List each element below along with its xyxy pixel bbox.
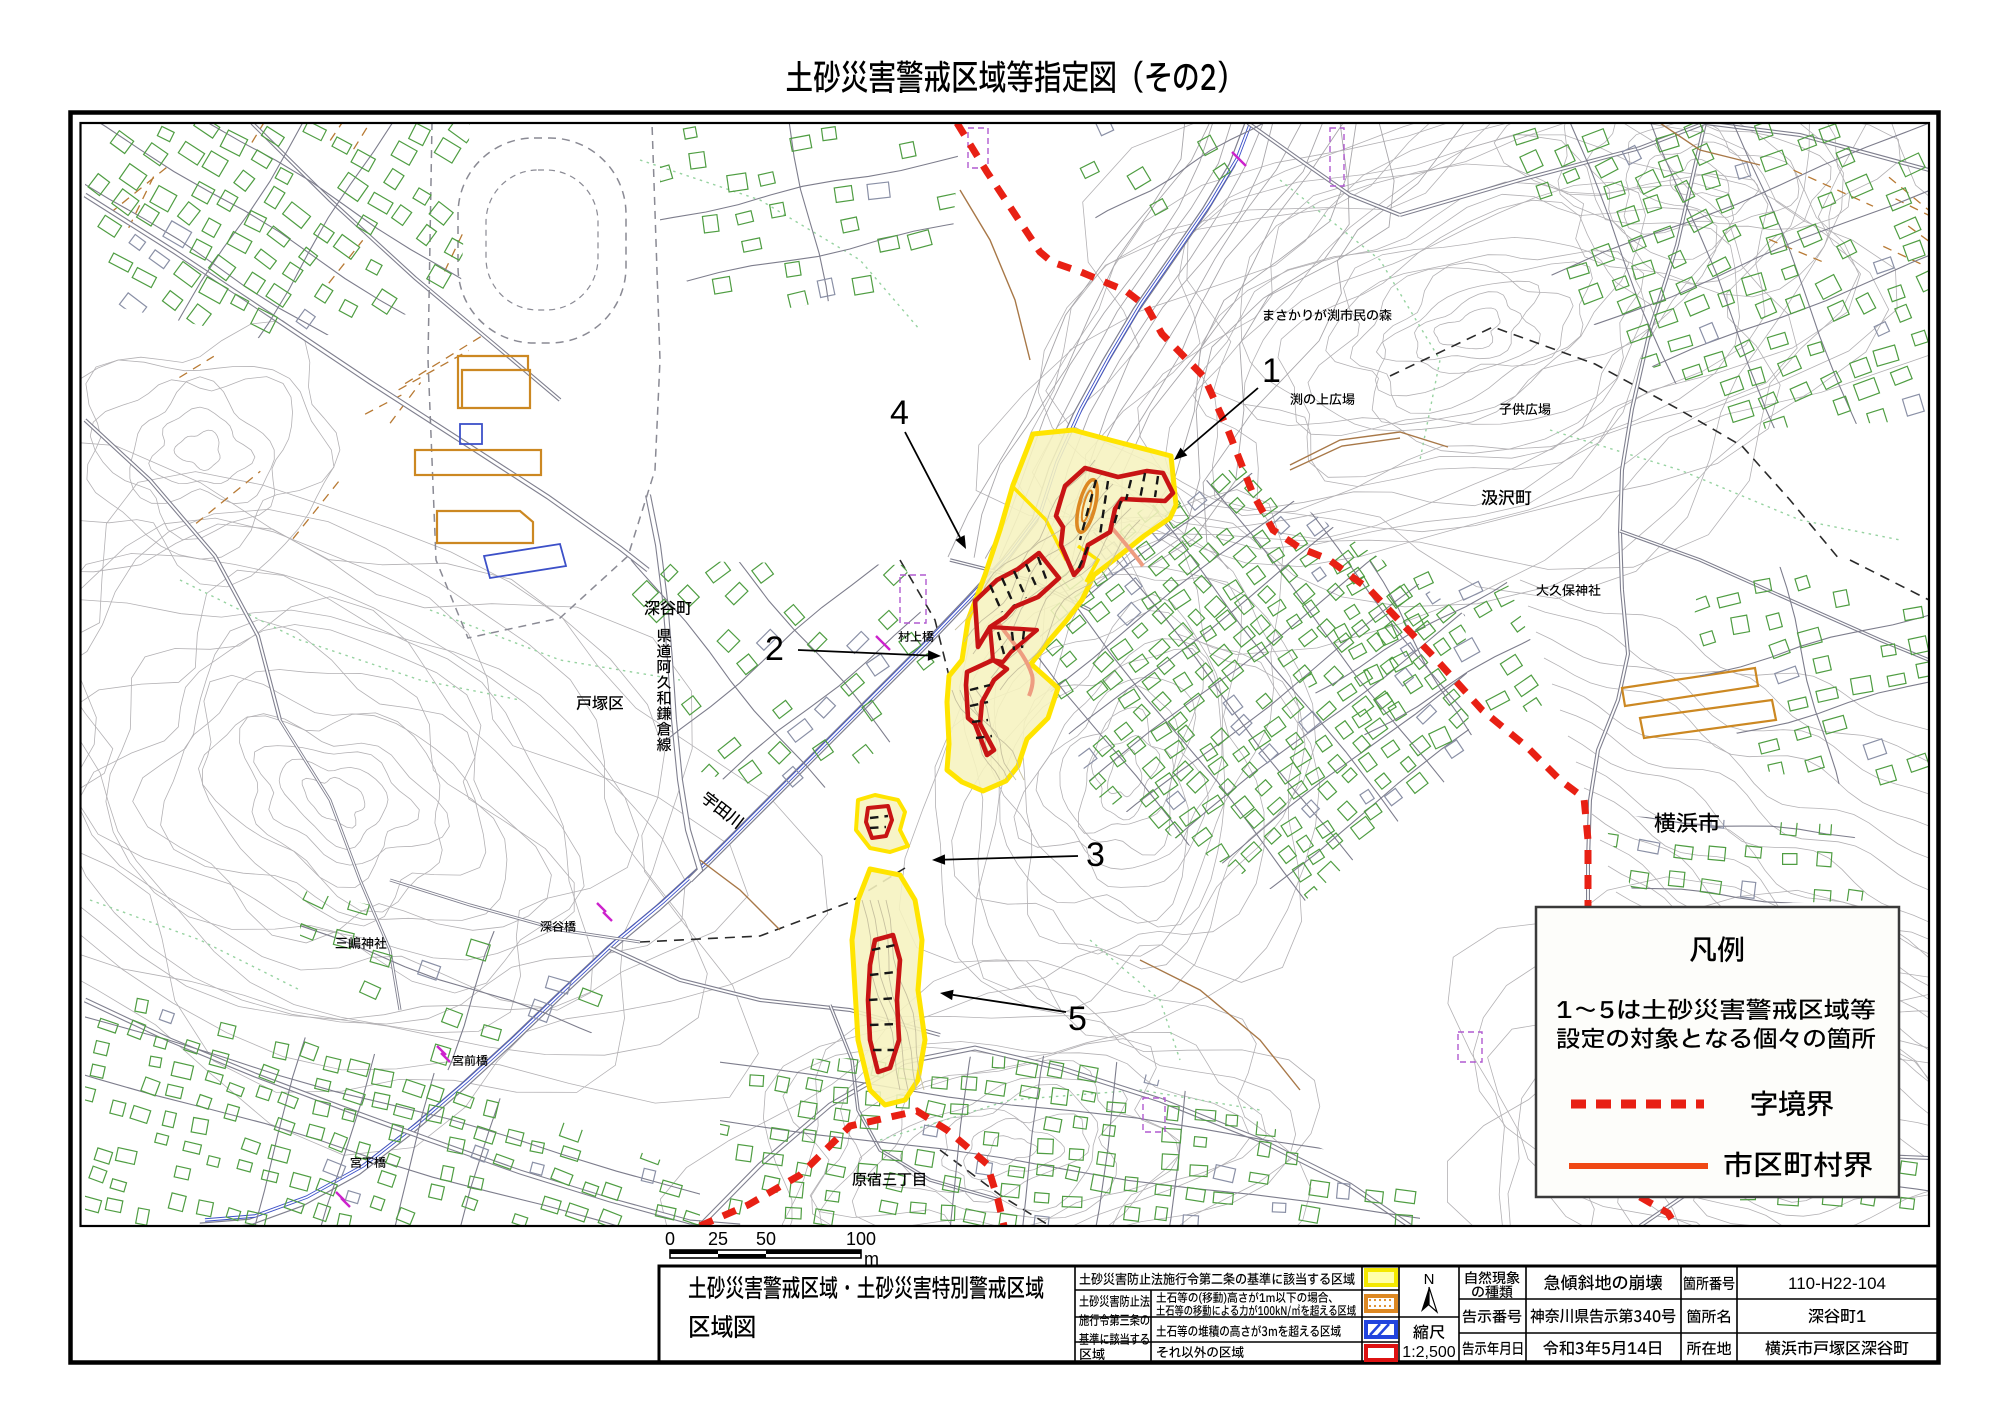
svg-text:110-H22-104: 110-H22-104: [1788, 1274, 1886, 1293]
svg-text:1: 1: [1262, 352, 1281, 390]
svg-text:0: 0: [665, 1229, 675, 1249]
svg-text:50: 50: [756, 1229, 776, 1249]
svg-text:3: 3: [1086, 836, 1105, 874]
svg-text:1:2,500: 1:2,500: [1402, 1344, 1455, 1361]
svg-text:N: N: [1424, 1271, 1435, 1288]
svg-text:2: 2: [765, 630, 784, 668]
svg-text:5: 5: [1068, 1000, 1087, 1038]
svg-text:25: 25: [708, 1229, 728, 1249]
svg-text:4: 4: [890, 394, 909, 432]
svg-text:100: 100: [846, 1229, 876, 1249]
